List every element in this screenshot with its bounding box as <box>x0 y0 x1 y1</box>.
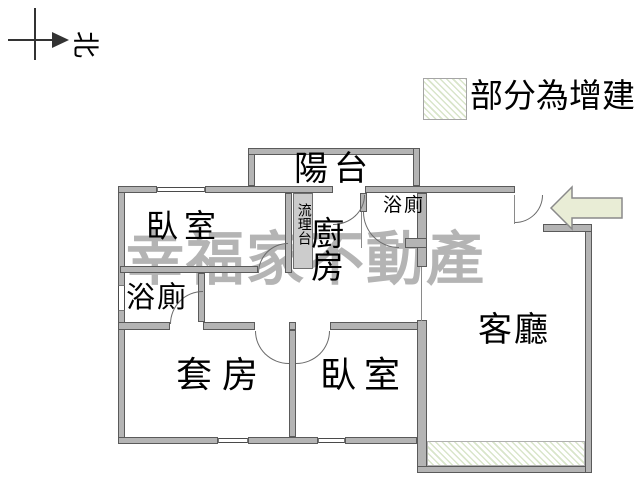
room-label-bath-left: 浴廁 <box>126 283 188 313</box>
wall <box>417 320 427 473</box>
legend-label: 部分為增建 <box>470 80 635 115</box>
room-label-bath-kitchen: 浴廁 <box>383 196 425 216</box>
window <box>318 438 345 443</box>
room-label-suite: 套房 <box>176 357 268 395</box>
legend-hatch-swatch <box>423 78 467 120</box>
wall <box>203 322 255 330</box>
room-label-kitchen: 廚房 <box>306 216 341 296</box>
compass-north-label: 北 <box>68 31 107 58</box>
window <box>118 285 125 311</box>
room-label-counter: 流理台 <box>295 203 310 265</box>
wall <box>118 322 170 330</box>
wall <box>248 437 318 444</box>
room-label-balcony: 陽台 <box>294 152 374 188</box>
wall <box>118 186 125 444</box>
room-label-bedroom-top: 臥室 <box>146 210 222 244</box>
door-leaf <box>361 212 362 248</box>
wall <box>120 266 258 273</box>
wall <box>289 330 296 437</box>
wall <box>585 224 592 473</box>
door-arc-entrance <box>515 195 543 223</box>
wall <box>118 437 218 444</box>
wall <box>405 238 427 248</box>
room-label-living: 客廳 <box>478 313 550 349</box>
opening-line <box>421 267 422 321</box>
wall <box>413 148 420 186</box>
window <box>218 438 248 443</box>
window <box>157 187 205 192</box>
wall <box>417 466 592 473</box>
wall <box>330 322 427 330</box>
floorplan-canvas: 北 部分為增建 幸福家不動產 陽台 臥 <box>0 0 640 480</box>
room-label-bedroom-bottom: 臥室 <box>320 357 408 395</box>
wall <box>365 186 515 193</box>
entrance-arrow-icon <box>548 185 626 233</box>
wall <box>289 322 296 330</box>
wall <box>345 437 417 444</box>
wall <box>118 186 157 193</box>
extension-hatch-area <box>427 441 585 466</box>
